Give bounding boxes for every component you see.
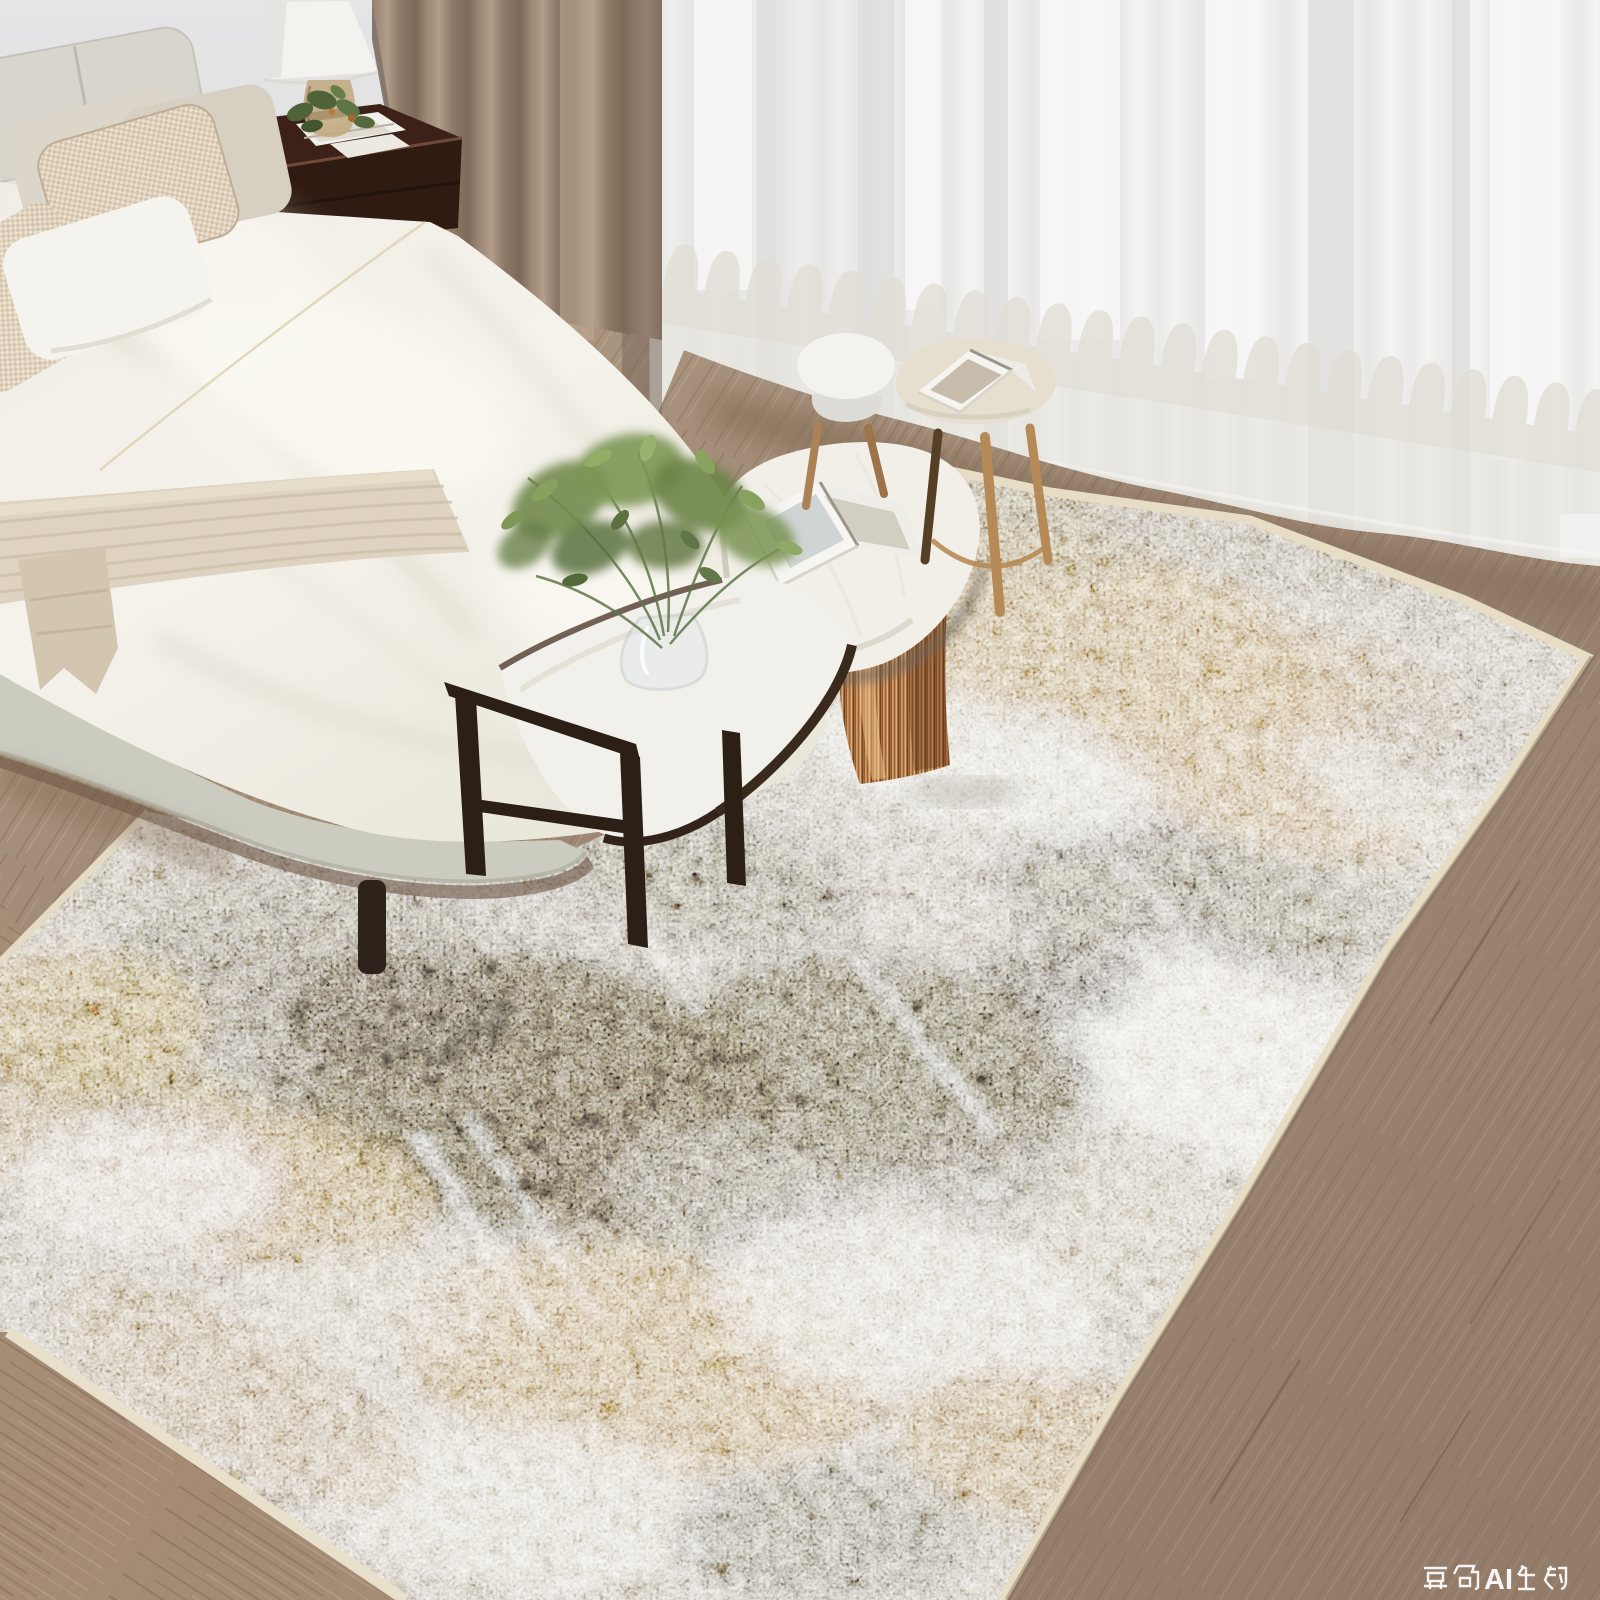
svg-text:AI: AI (1484, 1564, 1513, 1596)
